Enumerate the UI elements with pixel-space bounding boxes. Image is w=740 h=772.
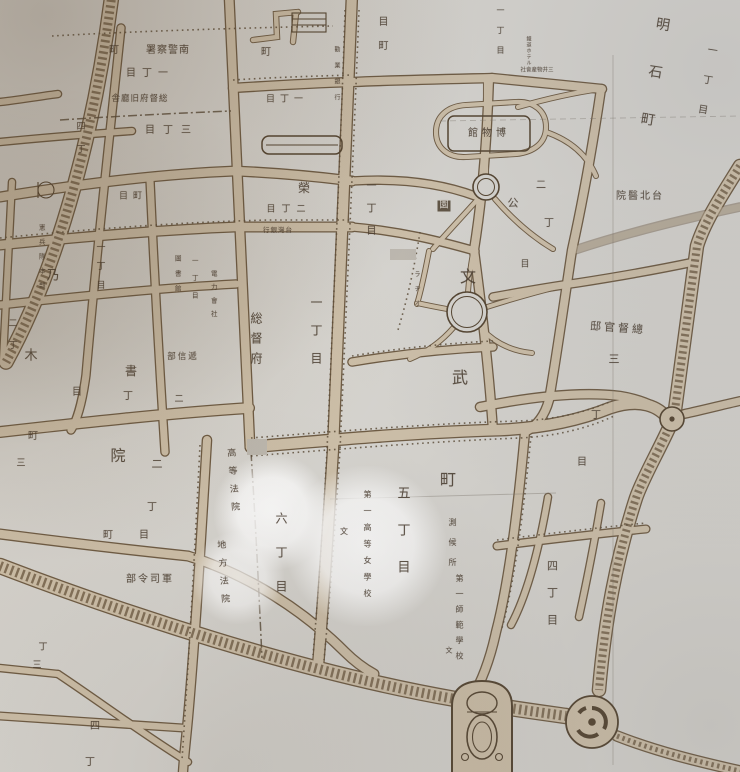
map-label-itchome-a: 目丁一 xyxy=(126,69,174,79)
map-label-itchome-b: 一丁目 xyxy=(95,242,104,299)
gray-building xyxy=(390,249,416,260)
map-label-taiwan-ginko: 行銀灣台 xyxy=(263,227,293,234)
map-label-itchome-h: 目丁一 xyxy=(266,96,308,105)
map-label-me-b: 目 xyxy=(577,458,587,468)
map-label-cho-g: 町 xyxy=(261,48,271,58)
map-label-kenpeitai-honbu: 憲兵隊本部 xyxy=(38,224,45,297)
map-label-mecho: 目町 xyxy=(376,16,386,64)
map-label-denryoku-gaisha: 電力會社 xyxy=(210,270,217,324)
map-label-gochome: 五丁目 xyxy=(396,486,409,597)
map-label-cho-j: 丁 xyxy=(38,644,47,653)
map-label-ni-b: 二 xyxy=(174,396,183,405)
map-label-tetsudo-hotel: 鐵道ホテル xyxy=(526,36,531,66)
map-label-bun-b: 文 xyxy=(340,528,348,536)
map-label-nichome-e: 目丁二 xyxy=(266,206,311,215)
map-label-nogi-no: 乃 xyxy=(46,270,59,283)
map-label-cho-c: 町 xyxy=(28,432,38,442)
map-label-ko: 公 xyxy=(508,198,519,209)
park-circle-icon xyxy=(447,292,487,332)
map-label-bun: 文 xyxy=(460,269,476,285)
map-label-yonchome-a: 四丁 xyxy=(75,121,84,167)
map-label-cho-d: 丁 xyxy=(123,392,133,402)
city-gate-icon xyxy=(452,681,512,772)
map-label-ni-c: 二 xyxy=(152,459,163,470)
gray-building-2 xyxy=(247,439,267,455)
map-label-sho: 書 xyxy=(125,365,137,377)
map-label-bun-c: 文 xyxy=(446,648,453,655)
park-fountain-icon xyxy=(473,174,499,200)
map-label-gunshireibu: 部令司軍 xyxy=(126,575,174,585)
map-label-me-a: 目 xyxy=(72,388,82,398)
map-label-mitsui-bussan: 社會産物井三 xyxy=(520,68,553,74)
map-label-san-b: 三 xyxy=(609,354,620,365)
map-label-yonchome-b: 四丁目 xyxy=(547,560,558,641)
map-label-chome-b: 目町 xyxy=(119,193,147,202)
map-label-sokkojo: 測候所 xyxy=(448,518,456,578)
map-label-me-c: 目 xyxy=(520,261,529,270)
map-label-taihoku-byoin: 院醫北台 xyxy=(616,192,664,202)
map-label-sanchome-a: 目丁三 xyxy=(145,126,199,136)
map-label-cho-h: 丁 xyxy=(147,503,157,513)
map-label-en-box: 園 xyxy=(437,201,450,212)
map-label-hakubutsukan: 館物博 xyxy=(468,129,510,139)
historical-city-map: 署察警南町目丁一舎廳旧府督総目丁三四丁目町乃木憲兵隊本部一丁目二丁町三電力會社一… xyxy=(0,0,740,772)
map-label-san-a: 三 xyxy=(16,460,25,469)
map-label-sotokufu-kyuchosha: 舎廳旧府督総 xyxy=(111,95,168,104)
map-label-itchome-f: 一丁目 xyxy=(496,6,504,66)
map-label-in-big: 院 xyxy=(110,449,125,464)
map-label-sakae: 榮 xyxy=(298,182,310,194)
map-label-cho-e: 丁 xyxy=(591,411,601,421)
map-label-itchome-c: 一丁目 xyxy=(191,257,198,310)
map-label-nogi-ki: 木 xyxy=(24,350,37,363)
roads-fill xyxy=(0,0,740,772)
map-label-itchome-g: 一丁目 xyxy=(364,180,374,248)
map-canvas xyxy=(0,0,740,772)
map-label-yon-b: 四 xyxy=(90,722,100,732)
map-label-cho-k: 丁 xyxy=(85,758,95,768)
map-label-rokuchome: 六丁目 xyxy=(275,512,287,614)
map-label-daiichi-shihan-gakko: 第一師範學校 xyxy=(455,574,463,667)
map-label-sotokufu: 総督府 xyxy=(250,312,262,372)
map-label-cho-f: 丁 xyxy=(544,219,554,229)
map-label-ni-d: 二 xyxy=(536,181,546,191)
map-label-san-c: 三 xyxy=(32,662,41,671)
map-label-minami-keisatsusho: 署察警南 xyxy=(146,46,190,56)
map-label-daiichi-koto-jogakko: 第一高等女學校 xyxy=(363,490,371,606)
map-label-itchome-d: 一丁目 xyxy=(310,296,322,380)
map-label-bu: 武 xyxy=(452,370,468,386)
map-label-teishinbu: 部信遞 xyxy=(167,353,199,362)
map-label-cho-i: 町 xyxy=(103,531,113,541)
map-label-kangyo-ginko: 勸業銀行 xyxy=(333,46,339,110)
map-label-rajio: ラヂオ xyxy=(413,271,419,315)
map-label-me-d: 目 xyxy=(139,531,149,541)
map-label-cho-a: 町 xyxy=(109,46,119,56)
map-label-nichome-a: 二丁 xyxy=(7,318,16,362)
map-label-toshokan: 圖書館 xyxy=(174,255,181,300)
map-label-machi: 町 xyxy=(440,472,456,488)
